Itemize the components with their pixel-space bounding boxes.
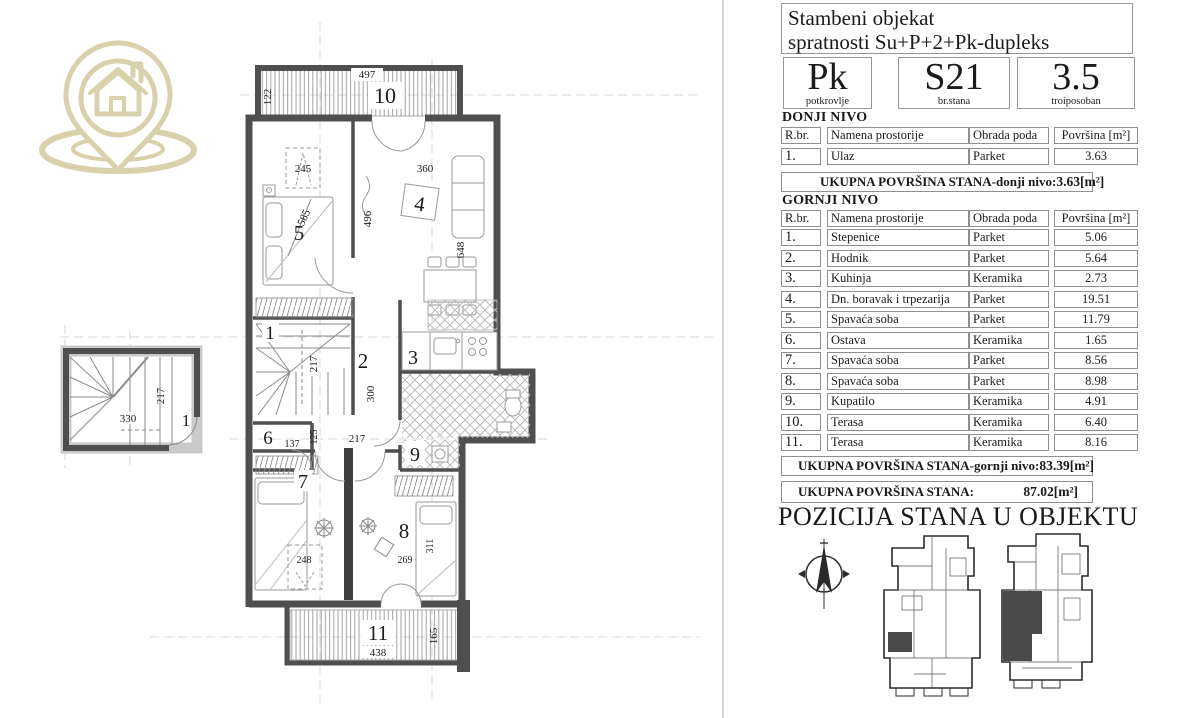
row-area: 2.73 [1054, 270, 1138, 287]
row-room: Ostava [827, 332, 969, 349]
apartment-total: UKUPNA POVRŠINA STANA: 87.02[m²] [781, 481, 1093, 503]
total-value: 83.39[m²] [1039, 458, 1094, 474]
table-row: 4. Dn. boravak i trpezarija Parket 19.51 [0, 291, 1200, 309]
row-area: 8.56 [1054, 352, 1138, 369]
row-floor: Keramika [969, 332, 1049, 349]
svg-text:269: 269 [398, 555, 413, 566]
total-label: UKUPNA POVRŠINA STANA-donji nivo: [820, 174, 1056, 190]
table-row: 1. Ulaz Parket 3.63 [0, 148, 1200, 166]
row-area: 8.98 [1054, 373, 1138, 390]
row-room: Ulaz [827, 148, 969, 165]
row-area: 4.91 [1054, 393, 1138, 410]
title-line-2: spratnosti Su+P+2+Pk-dupleks [788, 30, 1132, 54]
svg-text:248: 248 [297, 555, 312, 566]
row-room: Kupatilo [827, 393, 969, 410]
row-floor: Keramika [969, 434, 1049, 451]
dim-label: 497 [359, 69, 376, 81]
total-value: 3.63[m²] [1056, 174, 1104, 190]
row-num: 4. [781, 291, 821, 308]
row-num: 8. [781, 373, 821, 390]
col-rbr: R.br. [781, 210, 821, 227]
rooms-count: 3.5 [1018, 57, 1134, 97]
table-row: 10. Terasa Keramika 6.40 [0, 414, 1200, 432]
row-room: Dn. boravak i trpezarija [827, 291, 969, 308]
row-num: 2. [781, 250, 821, 267]
position-heading: POZICIJA STANA U OBJEKTU [778, 502, 1178, 532]
table-row: 8. Spavaća soba Parket 8.98 [0, 373, 1200, 391]
unit-number: S21 [899, 57, 1009, 97]
upper-table-header: R.br. Namena prostorije Obrada poda Povr… [0, 210, 1200, 228]
col-namena: Namena prostorije [827, 127, 969, 144]
row-floor: Parket [969, 352, 1049, 369]
table-row: 9. Kupatilo Keramika 4.91 [0, 393, 1200, 411]
svg-text:438: 438 [370, 647, 387, 659]
row-floor: Keramika [969, 393, 1049, 410]
table-row: 11. Terasa Keramika 8.16 [0, 434, 1200, 452]
svg-text:165: 165 [428, 627, 440, 644]
col-namena: Namena prostorije [827, 210, 969, 227]
row-area: 1.65 [1054, 332, 1138, 349]
row-area: 3.63 [1054, 148, 1138, 165]
upper-level-total: UKUPNA POVRŠINA STANA-gornji nivo: 83.39… [781, 456, 1093, 476]
row-room: Spavaća soba [827, 352, 969, 369]
row-floor: Parket [969, 311, 1049, 328]
total-label: UKUPNA POVRŠINA STANA-gornji nivo: [798, 458, 1039, 474]
row-area: 8.16 [1054, 434, 1138, 451]
row-num: 11. [781, 434, 821, 451]
table-row: 6. Ostava Keramika 1.65 [0, 332, 1200, 350]
row-area: 6.40 [1054, 414, 1138, 431]
row-num: 1. [781, 229, 821, 246]
building-plan-right [1002, 534, 1092, 688]
table-row: 7. Spavaća soba Parket 8.56 [0, 352, 1200, 370]
building-plan-left [884, 536, 980, 696]
table-row: 3. Kuhinja Keramika 2.73 [0, 270, 1200, 288]
row-floor: Parket [969, 291, 1049, 308]
row-area: 19.51 [1054, 291, 1138, 308]
terrace-bottom: 11 438 165 [287, 600, 470, 672]
col-rbr: R.br. [781, 127, 821, 144]
row-floor: Parket [969, 148, 1049, 165]
row-num: 10. [781, 414, 821, 431]
floor-label: potkrovlje [784, 96, 871, 107]
dim-label: 122 [262, 89, 274, 106]
row-room: Spavaća soba [827, 373, 969, 390]
row-floor: Parket [969, 250, 1049, 267]
row-num: 5. [781, 311, 821, 328]
floor-plan-page: 497 10 122 [0, 0, 1200, 718]
row-room: Kuhinja [827, 270, 969, 287]
table-row: 5. Spavaća soba Parket 11.79 [0, 311, 1200, 329]
north-compass-icon [795, 535, 853, 613]
row-num: 3. [781, 270, 821, 287]
col-obrada: Obrada poda [969, 210, 1049, 227]
lower-level-heading: DONJI NIVO [782, 110, 867, 126]
row-floor: Keramika [969, 270, 1049, 287]
room-number: 10 [374, 83, 396, 108]
row-room: Spavaća soba [827, 311, 969, 328]
row-num: 9. [781, 393, 821, 410]
total-value: 87.02[m²] [1023, 484, 1078, 500]
unit-number-box: S21 br.stana [898, 57, 1010, 109]
row-num: 1. [781, 148, 821, 165]
svg-text:8: 8 [399, 519, 410, 543]
bedroom-8: 8 269 311 [394, 476, 456, 596]
terrace-top: 497 10 122 [258, 66, 460, 116]
row-room: Terasa [827, 434, 969, 451]
row-num: 6. [781, 332, 821, 349]
bedroom-7: 7 248 [255, 456, 394, 590]
floor-code: Pk [784, 57, 871, 97]
unit-number-label: br.stana [899, 96, 1009, 107]
rooms-label: troiposoban [1018, 96, 1134, 107]
svg-text:311: 311 [425, 539, 436, 554]
col-povrsina: Površina [m²] [1054, 127, 1138, 144]
building-position-plans [860, 530, 1120, 716]
svg-text:11: 11 [368, 621, 388, 645]
row-floor: Keramika [969, 414, 1049, 431]
table-row: 1. Stepenice Parket 5.06 [0, 229, 1200, 247]
unit-rooms-box: 3.5 troiposoban [1017, 57, 1135, 109]
row-area: 11.79 [1054, 311, 1138, 328]
col-obrada: Obrada poda [969, 127, 1049, 144]
row-num: 7. [781, 352, 821, 369]
row-floor: Parket [969, 373, 1049, 390]
upper-level-heading: GORNJI NIVO [782, 193, 878, 209]
wall-bar-between-bedrooms [344, 448, 353, 600]
building-title: Stambeni objekat spratnosti Su+P+2+Pk-du… [781, 3, 1133, 54]
lower-table-header: R.br. Namena prostorije Obrada poda Povr… [0, 127, 1200, 145]
row-room: Hodnik [827, 250, 969, 267]
total-label: UKUPNA POVRŠINA STANA: [798, 484, 974, 500]
svg-text:7: 7 [298, 471, 308, 493]
title-line-1: Stambeni objekat [788, 6, 1132, 30]
row-room: Stepenice [827, 229, 969, 246]
col-povrsina: Površina [m²] [1054, 210, 1138, 227]
row-area: 5.64 [1054, 250, 1138, 267]
row-floor: Parket [969, 229, 1049, 246]
unit-floor-box: Pk potkrovlje [783, 57, 872, 109]
lower-level-total: UKUPNA POVRŠINA STANA-donji nivo: 3.63[m… [781, 172, 1093, 192]
row-room: Terasa [827, 414, 969, 431]
table-row: 2. Hodnik Parket 5.64 [0, 250, 1200, 268]
row-area: 5.06 [1054, 229, 1138, 246]
